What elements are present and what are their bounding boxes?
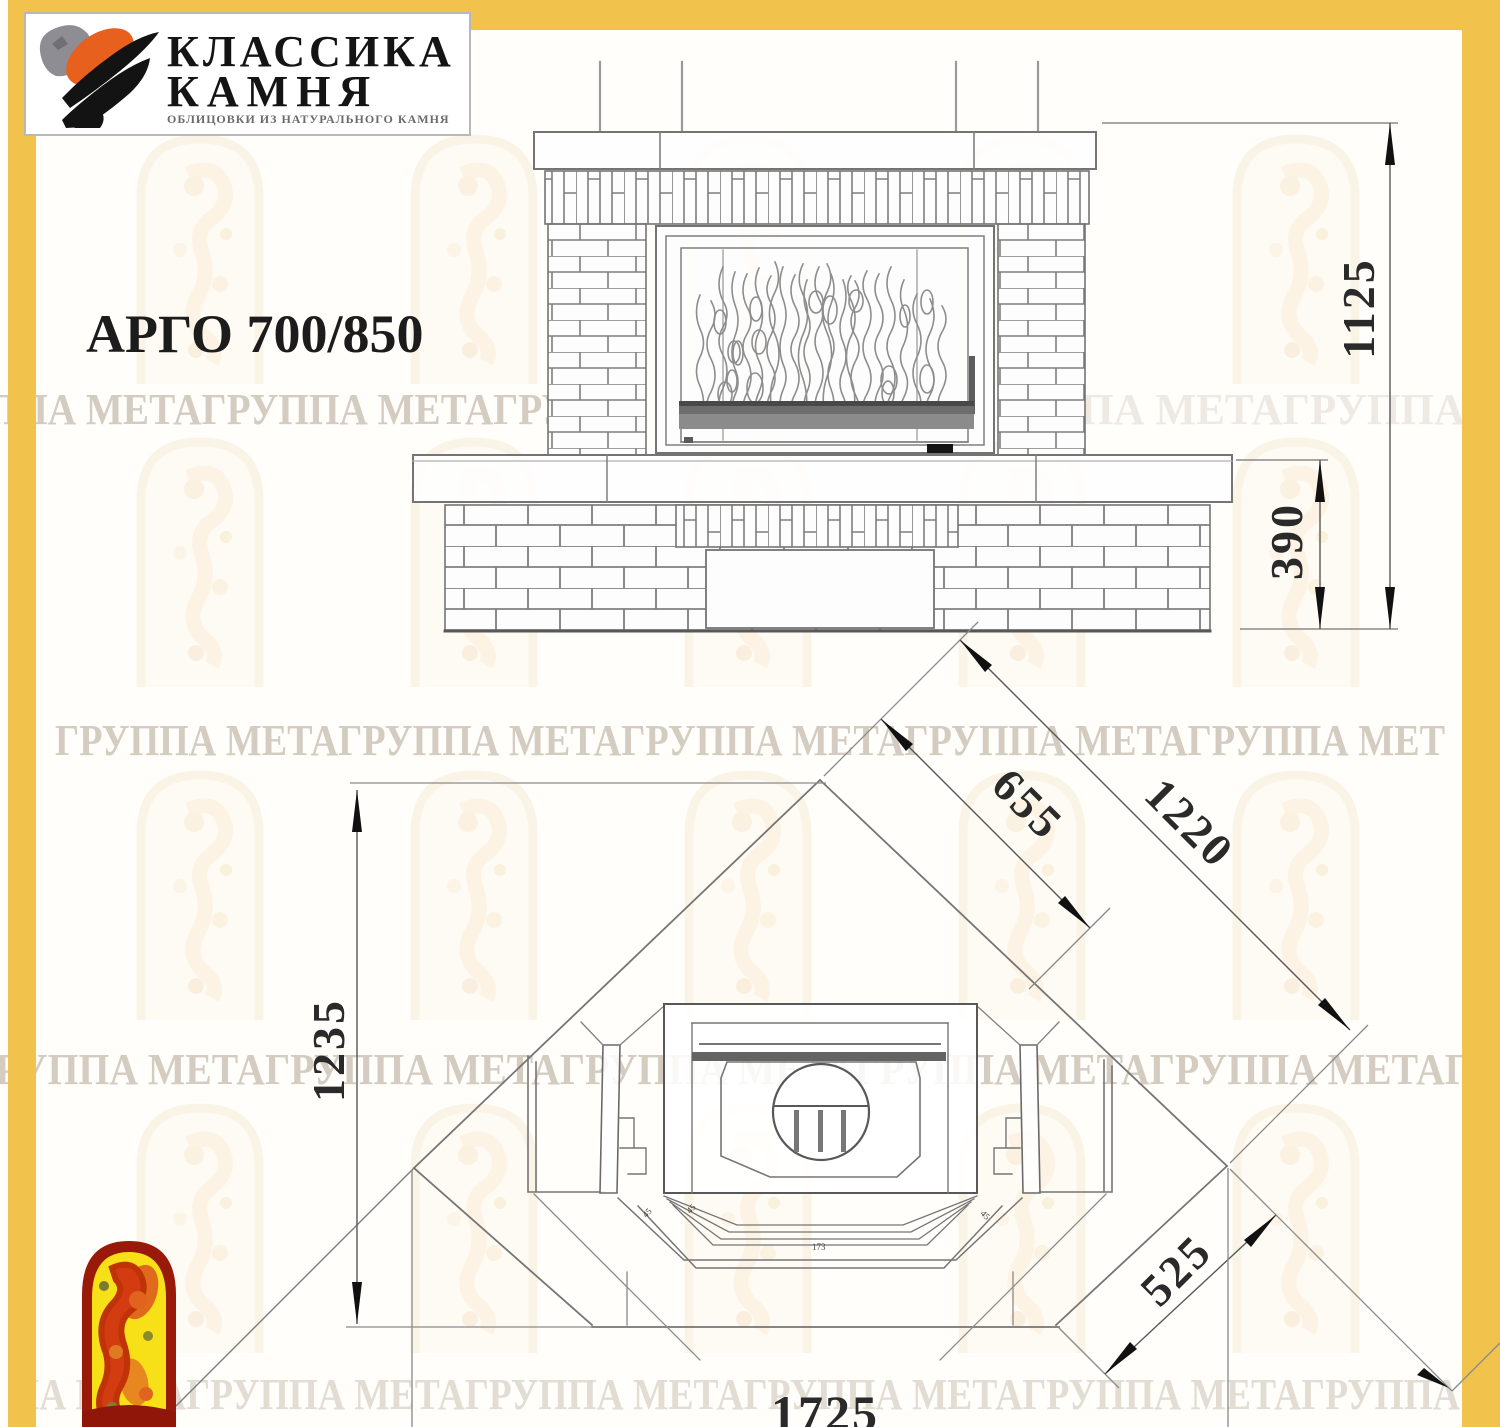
svg-text:ПА МЕТАГРУППА: ПА МЕТАГРУППА	[1080, 385, 1465, 434]
svg-text:173: 173	[812, 1242, 826, 1252]
svg-text:ОБЛИЦОВКИ ИЗ НАТУРАЛЬНОГО КАМН: ОБЛИЦОВКИ ИЗ НАТУРАЛЬНОГО КАМНЯ	[167, 112, 450, 126]
svg-text:390: 390	[1261, 502, 1312, 580]
svg-text:ГРУППА МЕТАГРУППА МЕТАГРУ: ГРУППА МЕТАГРУППА МЕТАГРУ	[0, 385, 570, 434]
svg-text:АРГО 700/850: АРГО 700/850	[86, 304, 424, 364]
svg-text:КАМНЯ: КАМНЯ	[167, 67, 378, 116]
svg-text:ПА МЕТАГРУППА МЕТАГРУППА МЕТАГ: ПА МЕТАГРУППА МЕТАГРУППА МЕТАГРУППА МЕТА…	[10, 1370, 1460, 1419]
svg-text:1125: 1125	[1333, 257, 1384, 358]
svg-text:1235: 1235	[303, 998, 354, 1102]
svg-text:1725: 1725	[771, 1385, 879, 1427]
svg-text:ГРУППА МЕТАГРУППА МЕТАГРУППА М: ГРУППА МЕТАГРУППА МЕТАГРУППА МЕТАГРУППА …	[55, 716, 1445, 765]
